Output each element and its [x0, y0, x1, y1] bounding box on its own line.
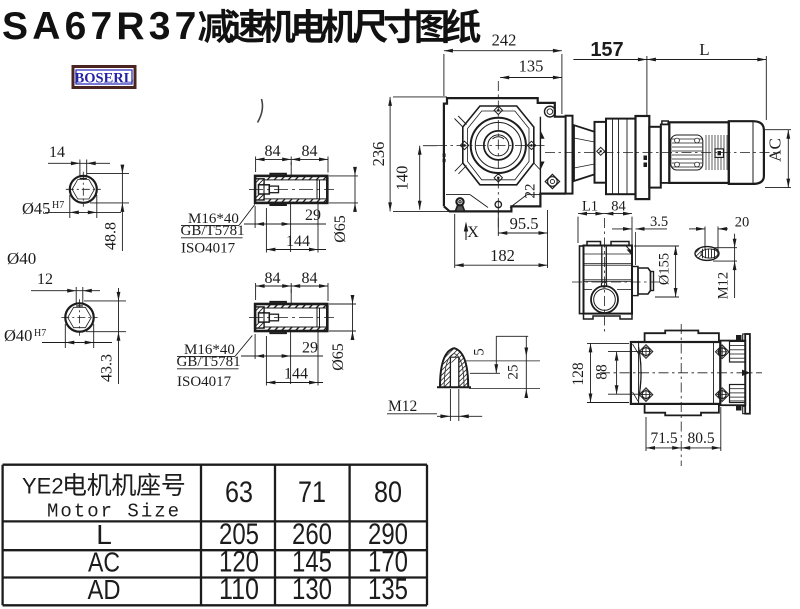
- svg-text:AD: AD: [88, 574, 121, 605]
- svg-text:20: 20: [735, 215, 750, 231]
- svg-text:236: 236: [369, 142, 388, 167]
- svg-text:135: 135: [519, 57, 544, 76]
- svg-text:L: L: [699, 40, 709, 59]
- svg-text:Ø40: Ø40: [7, 249, 36, 268]
- svg-text:Ø45: Ø45: [22, 199, 50, 218]
- svg-text:182: 182: [490, 246, 515, 265]
- svg-text:Ø65: Ø65: [332, 215, 349, 243]
- svg-text:84: 84: [302, 143, 318, 160]
- svg-text:135: 135: [368, 573, 408, 606]
- svg-text:95.5: 95.5: [510, 214, 539, 233]
- svg-text:80: 80: [374, 476, 402, 509]
- svg-text:Ø65: Ø65: [330, 343, 347, 371]
- svg-text:12: 12: [37, 271, 53, 288]
- svg-text:48.8: 48.8: [103, 222, 120, 250]
- svg-text:144: 144: [286, 233, 310, 250]
- svg-text:AC: AC: [88, 547, 120, 578]
- svg-text:43.3: 43.3: [99, 354, 116, 382]
- svg-text:140: 140: [393, 166, 412, 191]
- svg-text:M12: M12: [715, 272, 731, 299]
- svg-text:110: 110: [219, 573, 259, 606]
- svg-text:71.5: 71.5: [650, 430, 677, 447]
- svg-text:AC: AC: [766, 138, 785, 162]
- svg-text:ISO4017: ISO4017: [181, 241, 236, 257]
- svg-text:BOSERL: BOSERL: [75, 71, 134, 87]
- svg-text:Motor Size: Motor Size: [47, 501, 181, 523]
- svg-text:GB/T5781: GB/T5781: [181, 223, 245, 239]
- svg-text:M12: M12: [388, 398, 417, 415]
- svg-text:X: X: [467, 224, 479, 241]
- svg-text:242: 242: [492, 31, 517, 50]
- svg-text:88: 88: [594, 364, 611, 380]
- svg-text:Ø155: Ø155: [657, 253, 673, 285]
- svg-text:Ø40: Ø40: [4, 326, 32, 345]
- svg-text:84: 84: [611, 199, 626, 215]
- svg-text:128: 128: [570, 362, 587, 386]
- svg-text:L: L: [96, 519, 112, 550]
- svg-text:14: 14: [49, 144, 65, 161]
- svg-text:80.5: 80.5: [687, 430, 714, 447]
- svg-text:3.5: 3.5: [650, 214, 668, 230]
- svg-text:29: 29: [305, 207, 321, 224]
- svg-text:63: 63: [225, 476, 253, 509]
- svg-text:GB/T5781: GB/T5781: [177, 354, 241, 370]
- svg-text:5: 5: [472, 348, 488, 356]
- svg-text:SA67R37: SA67R37: [2, 5, 201, 48]
- svg-text:ISO4017: ISO4017: [177, 374, 232, 390]
- svg-text:84: 84: [265, 143, 281, 160]
- svg-text:157: 157: [590, 39, 623, 61]
- svg-text:YE2: YE2: [22, 474, 64, 499]
- svg-text:130: 130: [292, 573, 332, 606]
- svg-text:84: 84: [265, 270, 281, 287]
- svg-text:71: 71: [298, 476, 326, 509]
- svg-text:29: 29: [302, 340, 318, 357]
- svg-text:84: 84: [302, 270, 318, 287]
- svg-text:L1: L1: [582, 199, 598, 215]
- svg-text:144: 144: [284, 366, 308, 383]
- svg-text:25: 25: [506, 365, 522, 380]
- svg-text:22: 22: [523, 184, 539, 199]
- svg-text:H7: H7: [34, 328, 46, 339]
- svg-text:H7: H7: [52, 200, 64, 211]
